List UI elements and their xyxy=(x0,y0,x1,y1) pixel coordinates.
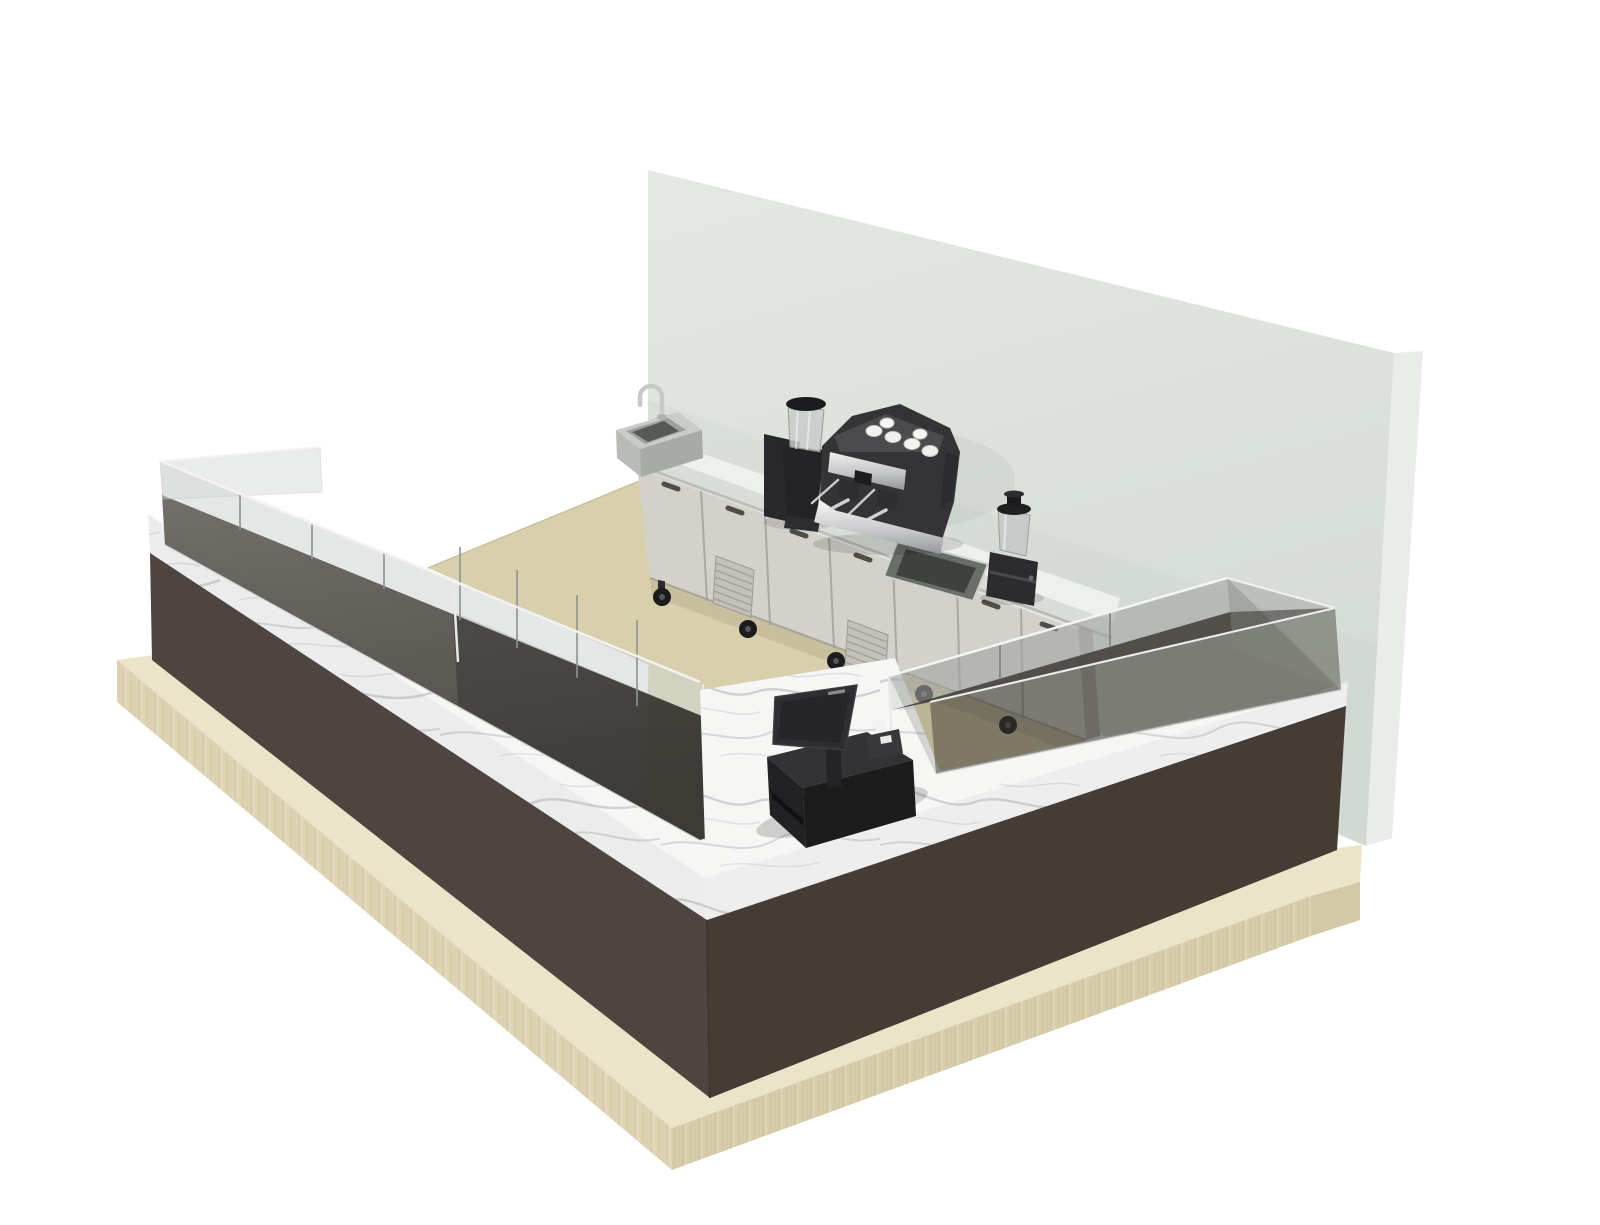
grinder-lid xyxy=(786,397,826,411)
faucet-base xyxy=(657,414,667,420)
blender-switch xyxy=(1029,576,1034,581)
render-canvas: 3D render of a cafe counter: U-shaped da… xyxy=(0,0,1600,1225)
blender-lid-cap-top xyxy=(1004,491,1024,498)
scene-3d-render xyxy=(0,0,1600,1225)
blender-jar xyxy=(998,508,1030,556)
grinder-hopper xyxy=(788,404,824,452)
